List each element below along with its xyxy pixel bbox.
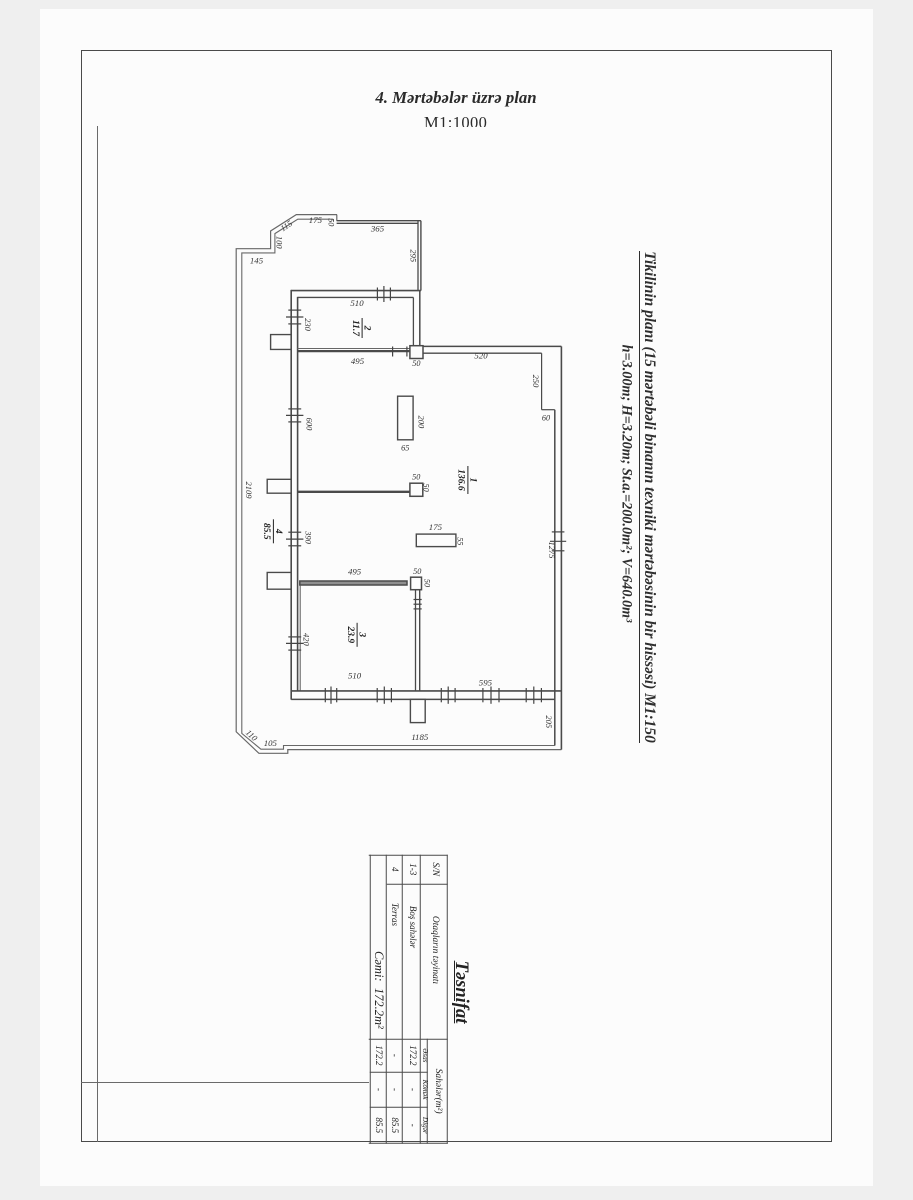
svg-text:11.7: 11.7 xyxy=(350,320,360,337)
svg-text:600: 600 xyxy=(305,418,315,432)
svg-text:520: 520 xyxy=(474,350,488,360)
svg-text:65: 65 xyxy=(401,444,409,453)
svg-text:1185: 1185 xyxy=(411,732,429,742)
svg-text:1275: 1275 xyxy=(547,542,557,559)
svg-text:50: 50 xyxy=(412,359,420,368)
svg-text:230: 230 xyxy=(303,318,313,332)
svg-text:495: 495 xyxy=(351,356,365,366)
svg-text:175: 175 xyxy=(309,215,323,225)
svg-text:2: 2 xyxy=(362,325,372,331)
svg-text:1: 1 xyxy=(468,478,478,483)
svg-text:50: 50 xyxy=(412,472,420,481)
svg-text:50: 50 xyxy=(421,484,430,492)
svg-text:295: 295 xyxy=(409,249,419,262)
svg-text:115: 115 xyxy=(278,218,294,233)
svg-text:2109: 2109 xyxy=(244,482,254,500)
svg-text:365: 365 xyxy=(370,223,385,233)
svg-text:250: 250 xyxy=(531,375,541,389)
svg-text:55: 55 xyxy=(456,537,465,545)
svg-text:50: 50 xyxy=(413,567,421,576)
svg-text:136.6: 136.6 xyxy=(456,469,466,491)
svg-text:200: 200 xyxy=(416,416,426,430)
svg-text:50: 50 xyxy=(327,218,336,226)
svg-text:50: 50 xyxy=(422,579,431,587)
svg-text:205: 205 xyxy=(544,715,554,728)
svg-text:60: 60 xyxy=(542,413,550,422)
svg-text:85.5: 85.5 xyxy=(261,523,271,540)
svg-text:420: 420 xyxy=(301,633,311,647)
svg-text:390: 390 xyxy=(304,530,314,545)
svg-text:510: 510 xyxy=(350,298,364,308)
svg-text:23.9: 23.9 xyxy=(345,625,355,643)
svg-text:510: 510 xyxy=(348,670,362,680)
svg-text:105: 105 xyxy=(264,738,278,748)
svg-text:595: 595 xyxy=(479,677,493,687)
svg-text:495: 495 xyxy=(348,567,362,577)
svg-text:3: 3 xyxy=(357,631,367,637)
svg-text:145: 145 xyxy=(250,255,264,265)
svg-text:100: 100 xyxy=(275,236,285,250)
svg-text:175: 175 xyxy=(429,522,443,532)
svg-text:4: 4 xyxy=(273,528,283,534)
